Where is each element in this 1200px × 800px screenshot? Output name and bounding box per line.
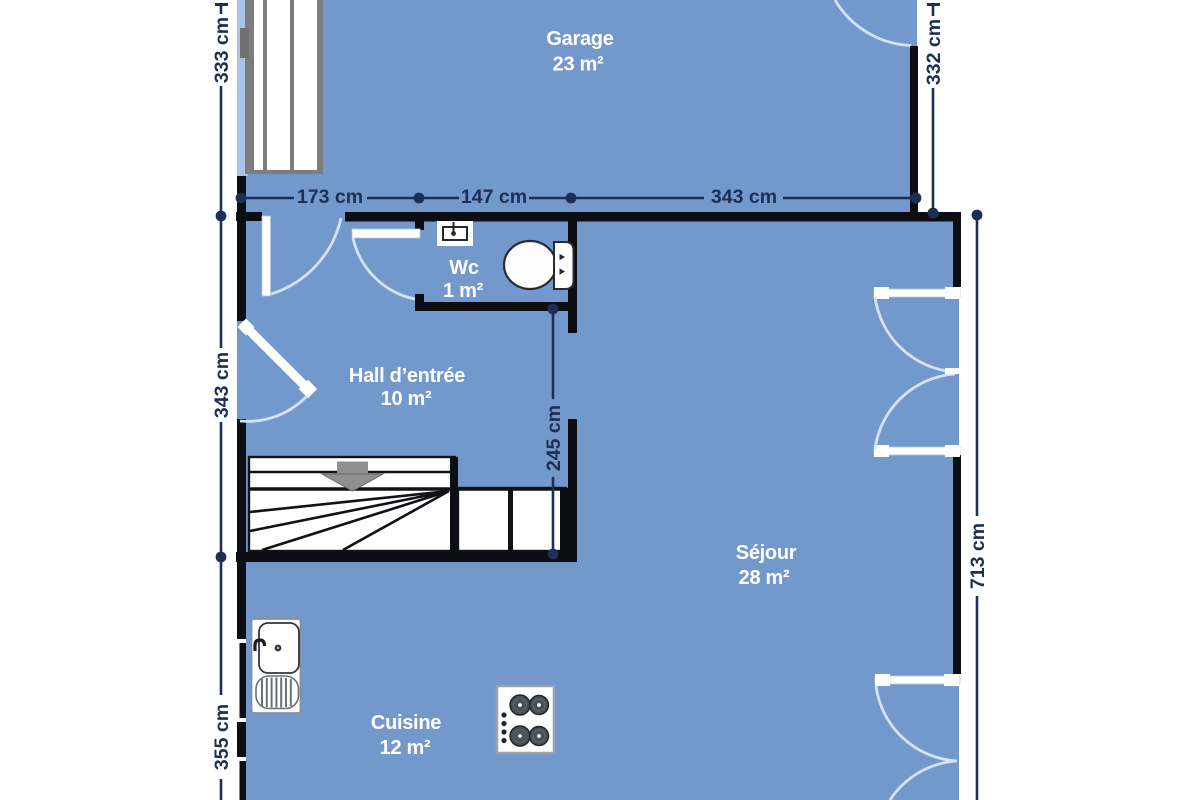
svg-text:173 cm: 173 cm: [297, 186, 363, 208]
svg-text:Wc: Wc: [449, 257, 479, 279]
svg-text:Cuisine: Cuisine: [371, 712, 441, 734]
svg-text:12 m²: 12 m²: [380, 737, 431, 759]
svg-text:147 cm: 147 cm: [461, 186, 527, 208]
svg-text:10 m²: 10 m²: [381, 388, 432, 410]
svg-text:Garage: Garage: [546, 28, 613, 50]
svg-text:713 cm: 713 cm: [967, 523, 989, 589]
svg-text:Hall d’entrée: Hall d’entrée: [349, 365, 465, 387]
svg-text:Séjour: Séjour: [736, 542, 797, 564]
svg-text:245 cm: 245 cm: [543, 405, 565, 471]
svg-text:343 cm: 343 cm: [211, 352, 233, 418]
svg-text:1 m²: 1 m²: [443, 280, 484, 302]
svg-text:333 cm: 333 cm: [211, 17, 233, 83]
svg-text:332 cm: 332 cm: [923, 19, 945, 85]
svg-text:23 m²: 23 m²: [553, 54, 604, 76]
svg-text:355 cm: 355 cm: [211, 704, 233, 770]
svg-text:28 m²: 28 m²: [739, 567, 790, 589]
svg-text:343 cm: 343 cm: [711, 186, 777, 208]
